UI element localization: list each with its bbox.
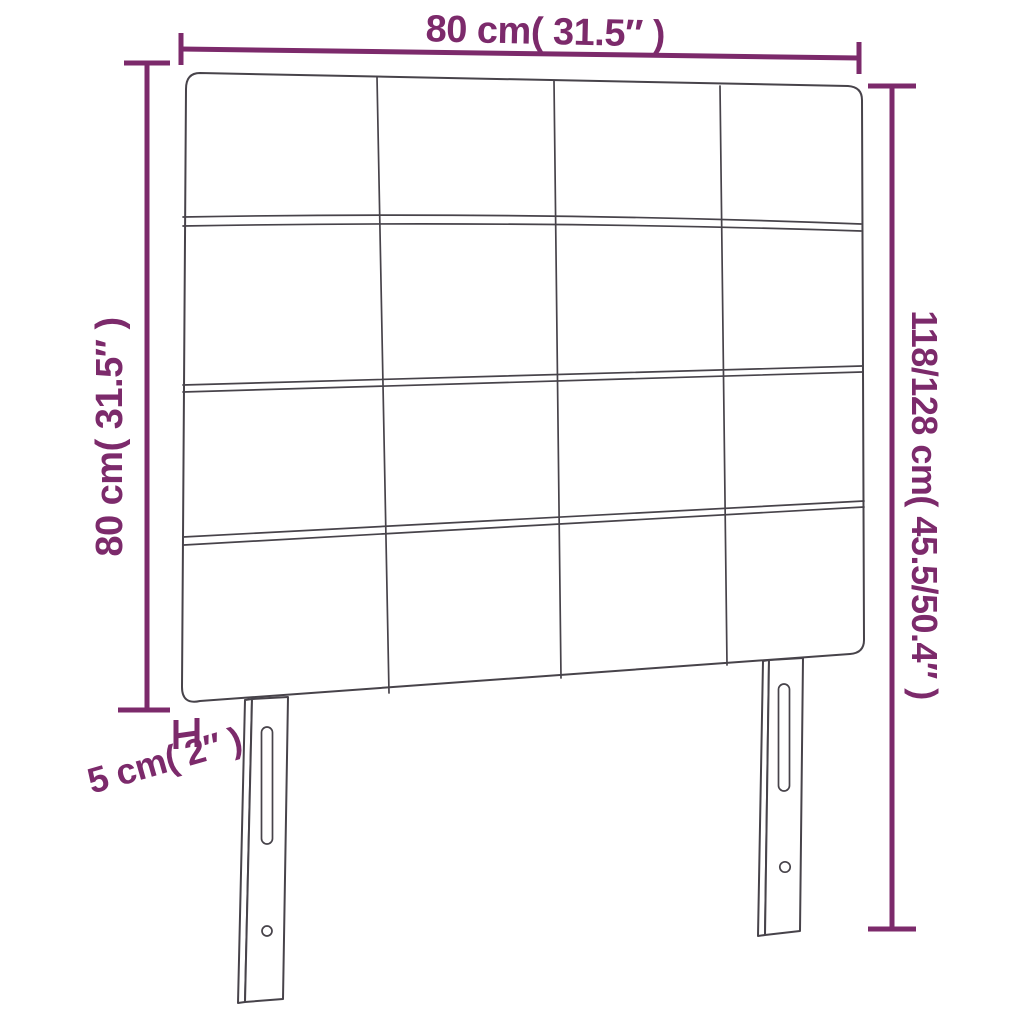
leg-right xyxy=(758,658,803,936)
height-left-dimension: 80 cm( 31.5″ ) xyxy=(89,63,170,710)
headboard-dimension-drawing: 80 cm( 31.5″ ) 80 cm( 31.5″ ) 118/128 cm… xyxy=(0,0,1024,1024)
dimension-diagram: 80 cm( 31.5″ ) 80 cm( 31.5″ ) 118/128 cm… xyxy=(0,0,1024,1024)
leg-left-front-face xyxy=(245,697,288,1002)
thickness-dimension: 5 cm( 2″ ) xyxy=(83,718,246,802)
height-right-dimension: 118/128 cm( 45.5/50.4″ ) xyxy=(868,86,945,929)
leg-left xyxy=(238,697,288,1003)
leg-right-front-face xyxy=(765,658,803,935)
headboard xyxy=(182,73,864,702)
width-label: 80 cm( 31.5″ ) xyxy=(425,8,665,55)
width-dimension: 80 cm( 31.5″ ) xyxy=(181,8,859,74)
headboard-outline xyxy=(182,73,864,702)
height-left-label: 80 cm( 31.5″ ) xyxy=(89,317,131,556)
thickness-label: 5 cm( 2″ ) xyxy=(83,718,246,801)
height-right-label: 118/128 cm( 45.5/50.4″ ) xyxy=(904,310,945,700)
